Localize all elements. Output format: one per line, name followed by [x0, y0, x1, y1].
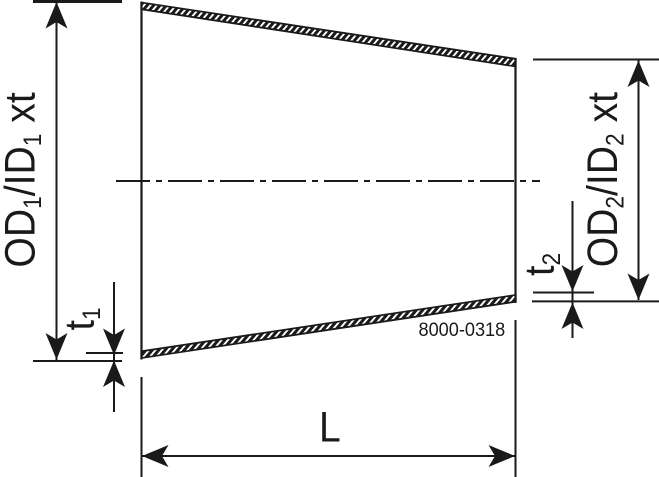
svg-text:OD1/ID1 xt: OD1/ID1 xt — [0, 92, 47, 268]
svg-text:8000-0318: 8000-0318 — [419, 319, 506, 340]
svg-text:L: L — [319, 403, 341, 451]
svg-text:t2: t2 — [517, 253, 566, 276]
svg-text:t1: t1 — [57, 307, 106, 330]
svg-text:OD2/ID2 xt: OD2/ID2 xt — [578, 91, 629, 267]
